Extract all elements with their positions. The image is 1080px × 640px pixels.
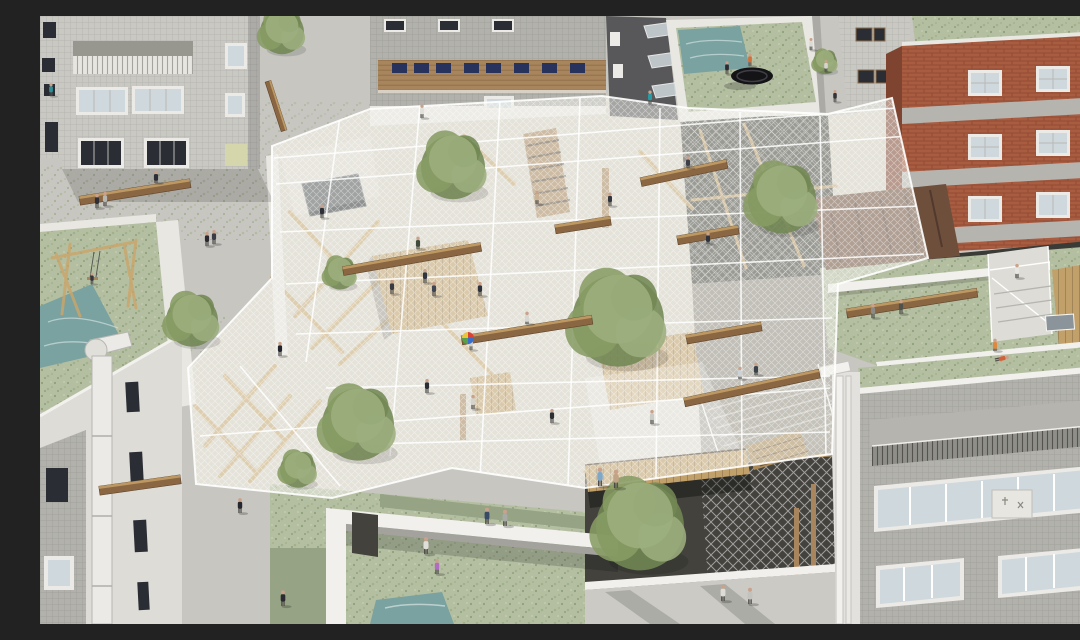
window <box>42 58 55 72</box>
net-canopy <box>188 96 928 498</box>
wood-post <box>811 484 816 568</box>
lit-window <box>225 144 247 166</box>
shop-sign <box>992 490 1032 518</box>
building-top-left <box>62 16 274 202</box>
parapet-wall <box>326 508 346 624</box>
building-top-center <box>370 16 606 110</box>
rooftop-pond-top-right <box>666 16 828 122</box>
balcony-railing <box>73 56 193 74</box>
window <box>43 22 56 38</box>
clerestory-windows <box>392 63 585 73</box>
rainbow-umbrella <box>462 332 474 344</box>
window <box>610 32 620 46</box>
balcony <box>73 41 193 74</box>
doorway <box>45 122 58 152</box>
shaded-moss <box>270 548 332 624</box>
window <box>46 468 68 502</box>
pond <box>678 26 750 74</box>
architectural-rendering: Aerial architectural rendering of a dens… <box>40 16 1080 624</box>
building-bottom-right <box>819 344 1080 624</box>
wall-gate <box>352 512 378 557</box>
windows-row <box>384 19 514 32</box>
stair-landing <box>988 246 1053 342</box>
wood-slat-band <box>378 60 606 93</box>
window <box>613 64 623 78</box>
scene-canvas: Aerial architectural rendering of a dens… <box>40 16 1080 624</box>
skylight <box>1046 314 1075 331</box>
